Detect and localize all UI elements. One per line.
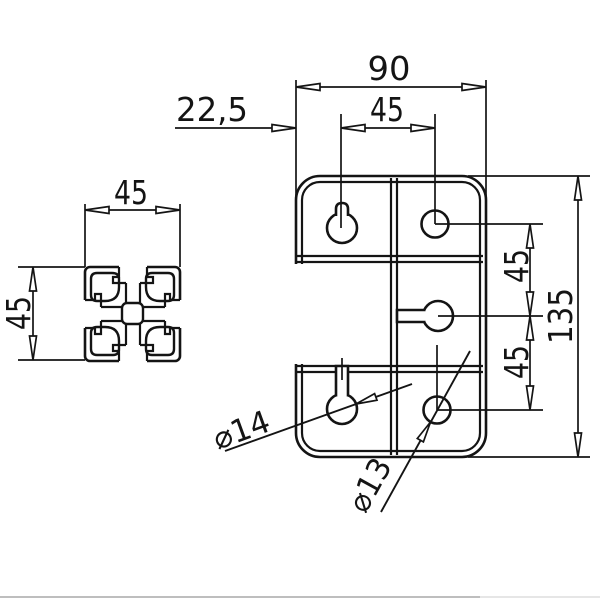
technical-drawing-canvas: 45 45: [0, 0, 600, 600]
center-bore: [122, 303, 143, 324]
profile-width-label: 45: [114, 173, 148, 212]
slot-gap-top: [119, 262, 147, 272]
slot-gap-bottom: [119, 356, 147, 366]
offset-label: 22,5: [176, 90, 248, 129]
keyhole-middle-slot-fill: [397, 310, 426, 322]
col-spacing-label: 45: [370, 90, 404, 129]
row-spacing-lower-label: 45: [497, 345, 536, 379]
plate-height-label: 135: [541, 288, 580, 344]
slot-gap-right: [175, 300, 185, 328]
row-spacing-upper-label: 45: [497, 249, 536, 283]
slot-gap-left: [80, 300, 90, 328]
profile-height-label: 45: [0, 296, 38, 330]
drawing-svg: 45 45: [0, 0, 600, 600]
notch-cutout: [290, 264, 389, 364]
keyhole-top-bulb: [327, 213, 357, 243]
plate-width-label: 90: [368, 49, 411, 88]
